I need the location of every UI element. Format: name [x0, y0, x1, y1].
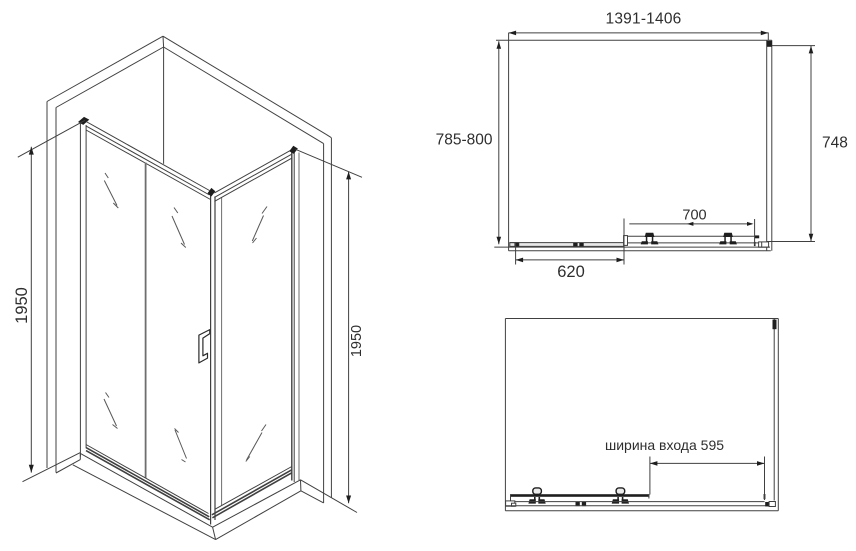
svg-text:785-800: 785-800 — [436, 132, 493, 149]
svg-text:748: 748 — [822, 135, 848, 152]
svg-text:1950: 1950 — [13, 287, 31, 324]
svg-text:620: 620 — [557, 263, 585, 281]
svg-text:1950: 1950 — [349, 325, 365, 357]
svg-text:700: 700 — [682, 208, 706, 224]
svg-text:1391-1406: 1391-1406 — [606, 11, 682, 28]
svg-text:ширина входа 595: ширина входа 595 — [605, 437, 724, 453]
